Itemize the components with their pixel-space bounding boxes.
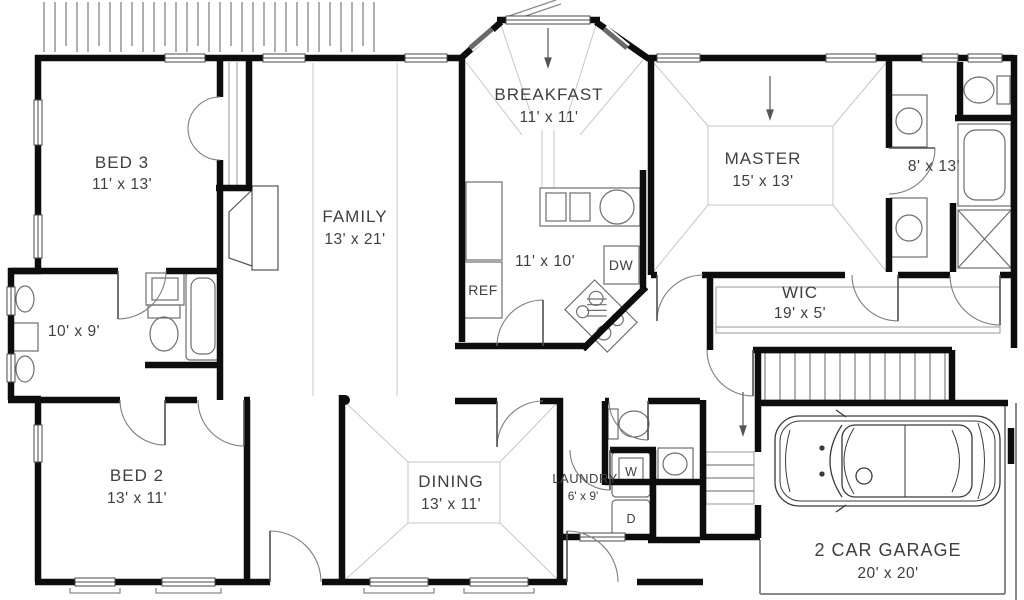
window (7, 287, 15, 315)
wic-dims: 19' x 5' (774, 305, 826, 322)
kitchen-door (497, 300, 543, 346)
stair-hall-door (707, 350, 753, 396)
master-tub-inner (964, 130, 1005, 200)
kitchen-sink-left (546, 193, 566, 221)
dryer-label: D (626, 512, 635, 526)
dishwasher-label: DW (609, 257, 634, 273)
vanity-cabinet (13, 323, 38, 351)
half-bath-sink (663, 453, 687, 475)
laundry-dims: 6' x 9' (568, 489, 599, 503)
master-shower (958, 210, 1011, 268)
washer-label: W (625, 465, 637, 479)
window-sills (70, 588, 534, 593)
kitchen-round-counter (600, 190, 634, 224)
garage-label: 2 CAR GARAGE (814, 540, 961, 560)
bed3-dims: 11' x 13' (92, 176, 152, 193)
window (162, 578, 215, 586)
hall-bath-toilet (150, 317, 178, 351)
window (405, 54, 447, 62)
master-sink-1 (896, 108, 922, 134)
laundry-label: LAUNDRY (552, 471, 617, 486)
car-top-view (775, 410, 1000, 512)
bed2-label: BED 2 (110, 466, 164, 485)
master-door (657, 275, 703, 321)
deck-hatch-lines (44, 2, 374, 52)
wic-door-1 (852, 275, 898, 321)
garage-entry-steps (706, 452, 754, 504)
bed2-dims: 13' x 11' (107, 490, 167, 507)
dining-label: DINING (418, 472, 484, 491)
floor-plan-drawing: BED 3 11' x 13' FAMILY 13' x 21' BREAKFA… (0, 0, 1024, 600)
master-dims: 15' x 13' (732, 173, 793, 190)
bed3-closet-rod (229, 62, 237, 186)
window (370, 578, 428, 586)
hall-bath-toilet-tank (148, 305, 180, 318)
window (75, 578, 115, 586)
master-bath-dims: 8' x 13' (908, 158, 960, 175)
fireplace (229, 186, 278, 270)
dining-dims: 13' x 11' (421, 496, 481, 513)
master-toilet (964, 77, 994, 103)
bay-window (506, 16, 590, 24)
wic-shelf-rod (716, 287, 1000, 333)
window (34, 215, 42, 258)
bed3-label: BED 3 (95, 153, 149, 172)
vanity-sink-left-1 (16, 286, 34, 312)
garage-dims: 20' x 20' (857, 565, 918, 582)
hall-bath-tub-inner (191, 278, 215, 354)
car-steering-wheel (856, 468, 872, 484)
window (657, 54, 700, 62)
wic-door-2 (950, 275, 1000, 325)
window (165, 54, 205, 62)
hall-bath-dims: 10' x 9' (48, 323, 100, 340)
half-bath-door (609, 401, 648, 440)
kitchen-pantry-cabinet (466, 182, 502, 260)
family-label: FAMILY (322, 207, 387, 226)
column (340, 395, 350, 405)
master-toilet-tank (997, 76, 1010, 104)
window (826, 54, 876, 62)
window (34, 100, 42, 145)
family-dims: 13' x 21' (324, 231, 385, 248)
master-sink-2 (896, 215, 922, 241)
stove (565, 280, 637, 352)
staircase (760, 353, 950, 400)
refrigerator-label: REF (468, 282, 498, 298)
master-label: MASTER (725, 149, 802, 168)
hall-door (120, 400, 165, 445)
kitchen-sink-right (570, 193, 590, 221)
bed2-door (198, 400, 244, 446)
ceiling-lines (313, 25, 886, 579)
window (968, 54, 1002, 62)
wic-label: WIC (782, 283, 818, 302)
bed3-closet-doors (188, 97, 220, 160)
floor-plan: BED 3 11' x 13' FAMILY 13' x 21' BREAKFA… (0, 0, 1024, 600)
window (580, 533, 625, 541)
breakfast-dims: 11' x 11' (520, 109, 579, 126)
breakfast-label: BREAKFAST (494, 85, 603, 104)
half-bath-toilet (619, 411, 649, 437)
window (7, 354, 15, 382)
vanity-sink-left-2 (16, 356, 34, 382)
window (470, 578, 528, 586)
window (922, 54, 958, 62)
kitchen-dims: 11' x 10' (515, 253, 575, 270)
rear-door (270, 531, 321, 582)
window (263, 54, 305, 62)
window (34, 425, 42, 462)
